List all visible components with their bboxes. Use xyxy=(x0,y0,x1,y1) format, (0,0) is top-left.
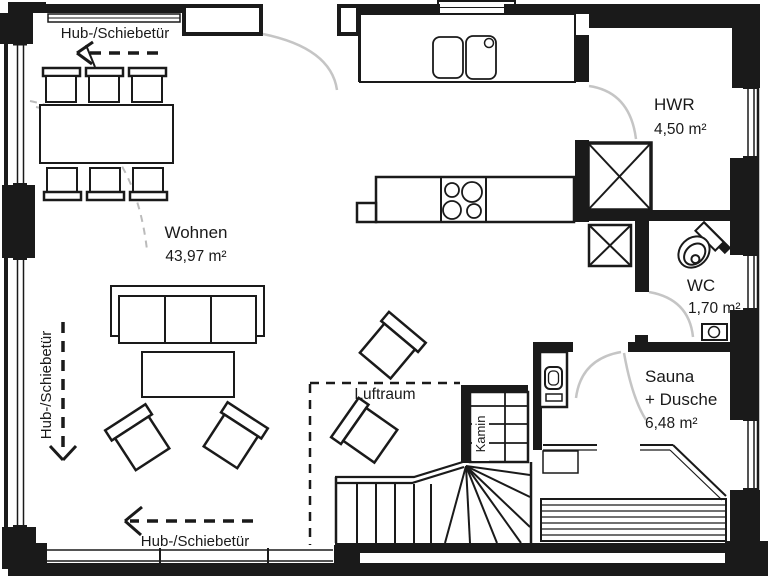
sliding-door-label-top: Hub-/Schiebetür xyxy=(61,25,169,42)
door-swing-arc xyxy=(576,352,621,398)
wc-label: WC xyxy=(687,276,715,295)
sliding-door-arrow-top xyxy=(77,42,158,67)
floor-plan: Wohnen 43,97 m² HWR 4,50 m² WC 1,70 m² S… xyxy=(0,0,768,576)
sauna-benches xyxy=(541,445,726,541)
sauna-label: Sauna xyxy=(645,367,695,386)
wc-area: 1,70 m² xyxy=(688,300,741,317)
floor-plan-svg: Wohnen 43,97 m² HWR 4,50 m² WC 1,70 m² S… xyxy=(0,0,768,576)
faucet-icon xyxy=(485,39,494,48)
wall-piers xyxy=(184,6,358,34)
winder-stairs xyxy=(335,461,531,543)
toilet xyxy=(672,222,724,274)
dining-table xyxy=(40,105,173,163)
kitchen-sink-bowl xyxy=(433,37,463,78)
sauna-label2: + Dusche xyxy=(645,390,717,409)
door-swing-arc xyxy=(589,86,636,139)
sauna-stool xyxy=(543,451,578,473)
door-swing-arc xyxy=(263,34,337,90)
door-swing-arc xyxy=(649,292,693,337)
dining-chair xyxy=(130,168,167,200)
hwr-label: HWR xyxy=(654,95,695,114)
kitchen xyxy=(357,14,575,222)
dining-chair xyxy=(87,168,124,200)
door-swing-arc xyxy=(624,353,646,420)
armchair xyxy=(331,398,399,466)
shower xyxy=(540,352,567,407)
armchair xyxy=(357,312,426,381)
duct-shaft xyxy=(589,225,631,266)
sofa xyxy=(111,286,264,343)
window-end-ticks xyxy=(743,84,759,493)
luftraum-boundary xyxy=(310,383,460,545)
washbasin xyxy=(702,324,727,340)
dining-chair xyxy=(86,68,123,102)
sliding-door-arrow-bottom xyxy=(125,507,253,535)
wohnen-label: Wohnen xyxy=(164,223,227,242)
hwr-area: 4,50 m² xyxy=(654,121,707,138)
coffee-table xyxy=(142,352,234,397)
dining-chair xyxy=(43,68,80,102)
luftraum-label: Luftraum xyxy=(354,386,415,403)
dining-chair xyxy=(129,68,166,102)
sauna-area: 6,48 m² xyxy=(645,415,698,432)
armchair xyxy=(105,404,172,472)
armchair xyxy=(200,402,267,470)
sliding-door-label-bottom: Hub-/Schiebetür xyxy=(141,533,249,550)
washing-machine xyxy=(588,143,651,210)
wohnen-area: 43,97 m² xyxy=(165,248,226,265)
dining-chair xyxy=(44,168,81,200)
kamin-label: Kamin xyxy=(473,416,488,453)
island-end-block xyxy=(357,203,376,222)
dining-set xyxy=(40,68,173,200)
sliding-door-label-left: Hub-/Schiebetür xyxy=(38,331,55,439)
